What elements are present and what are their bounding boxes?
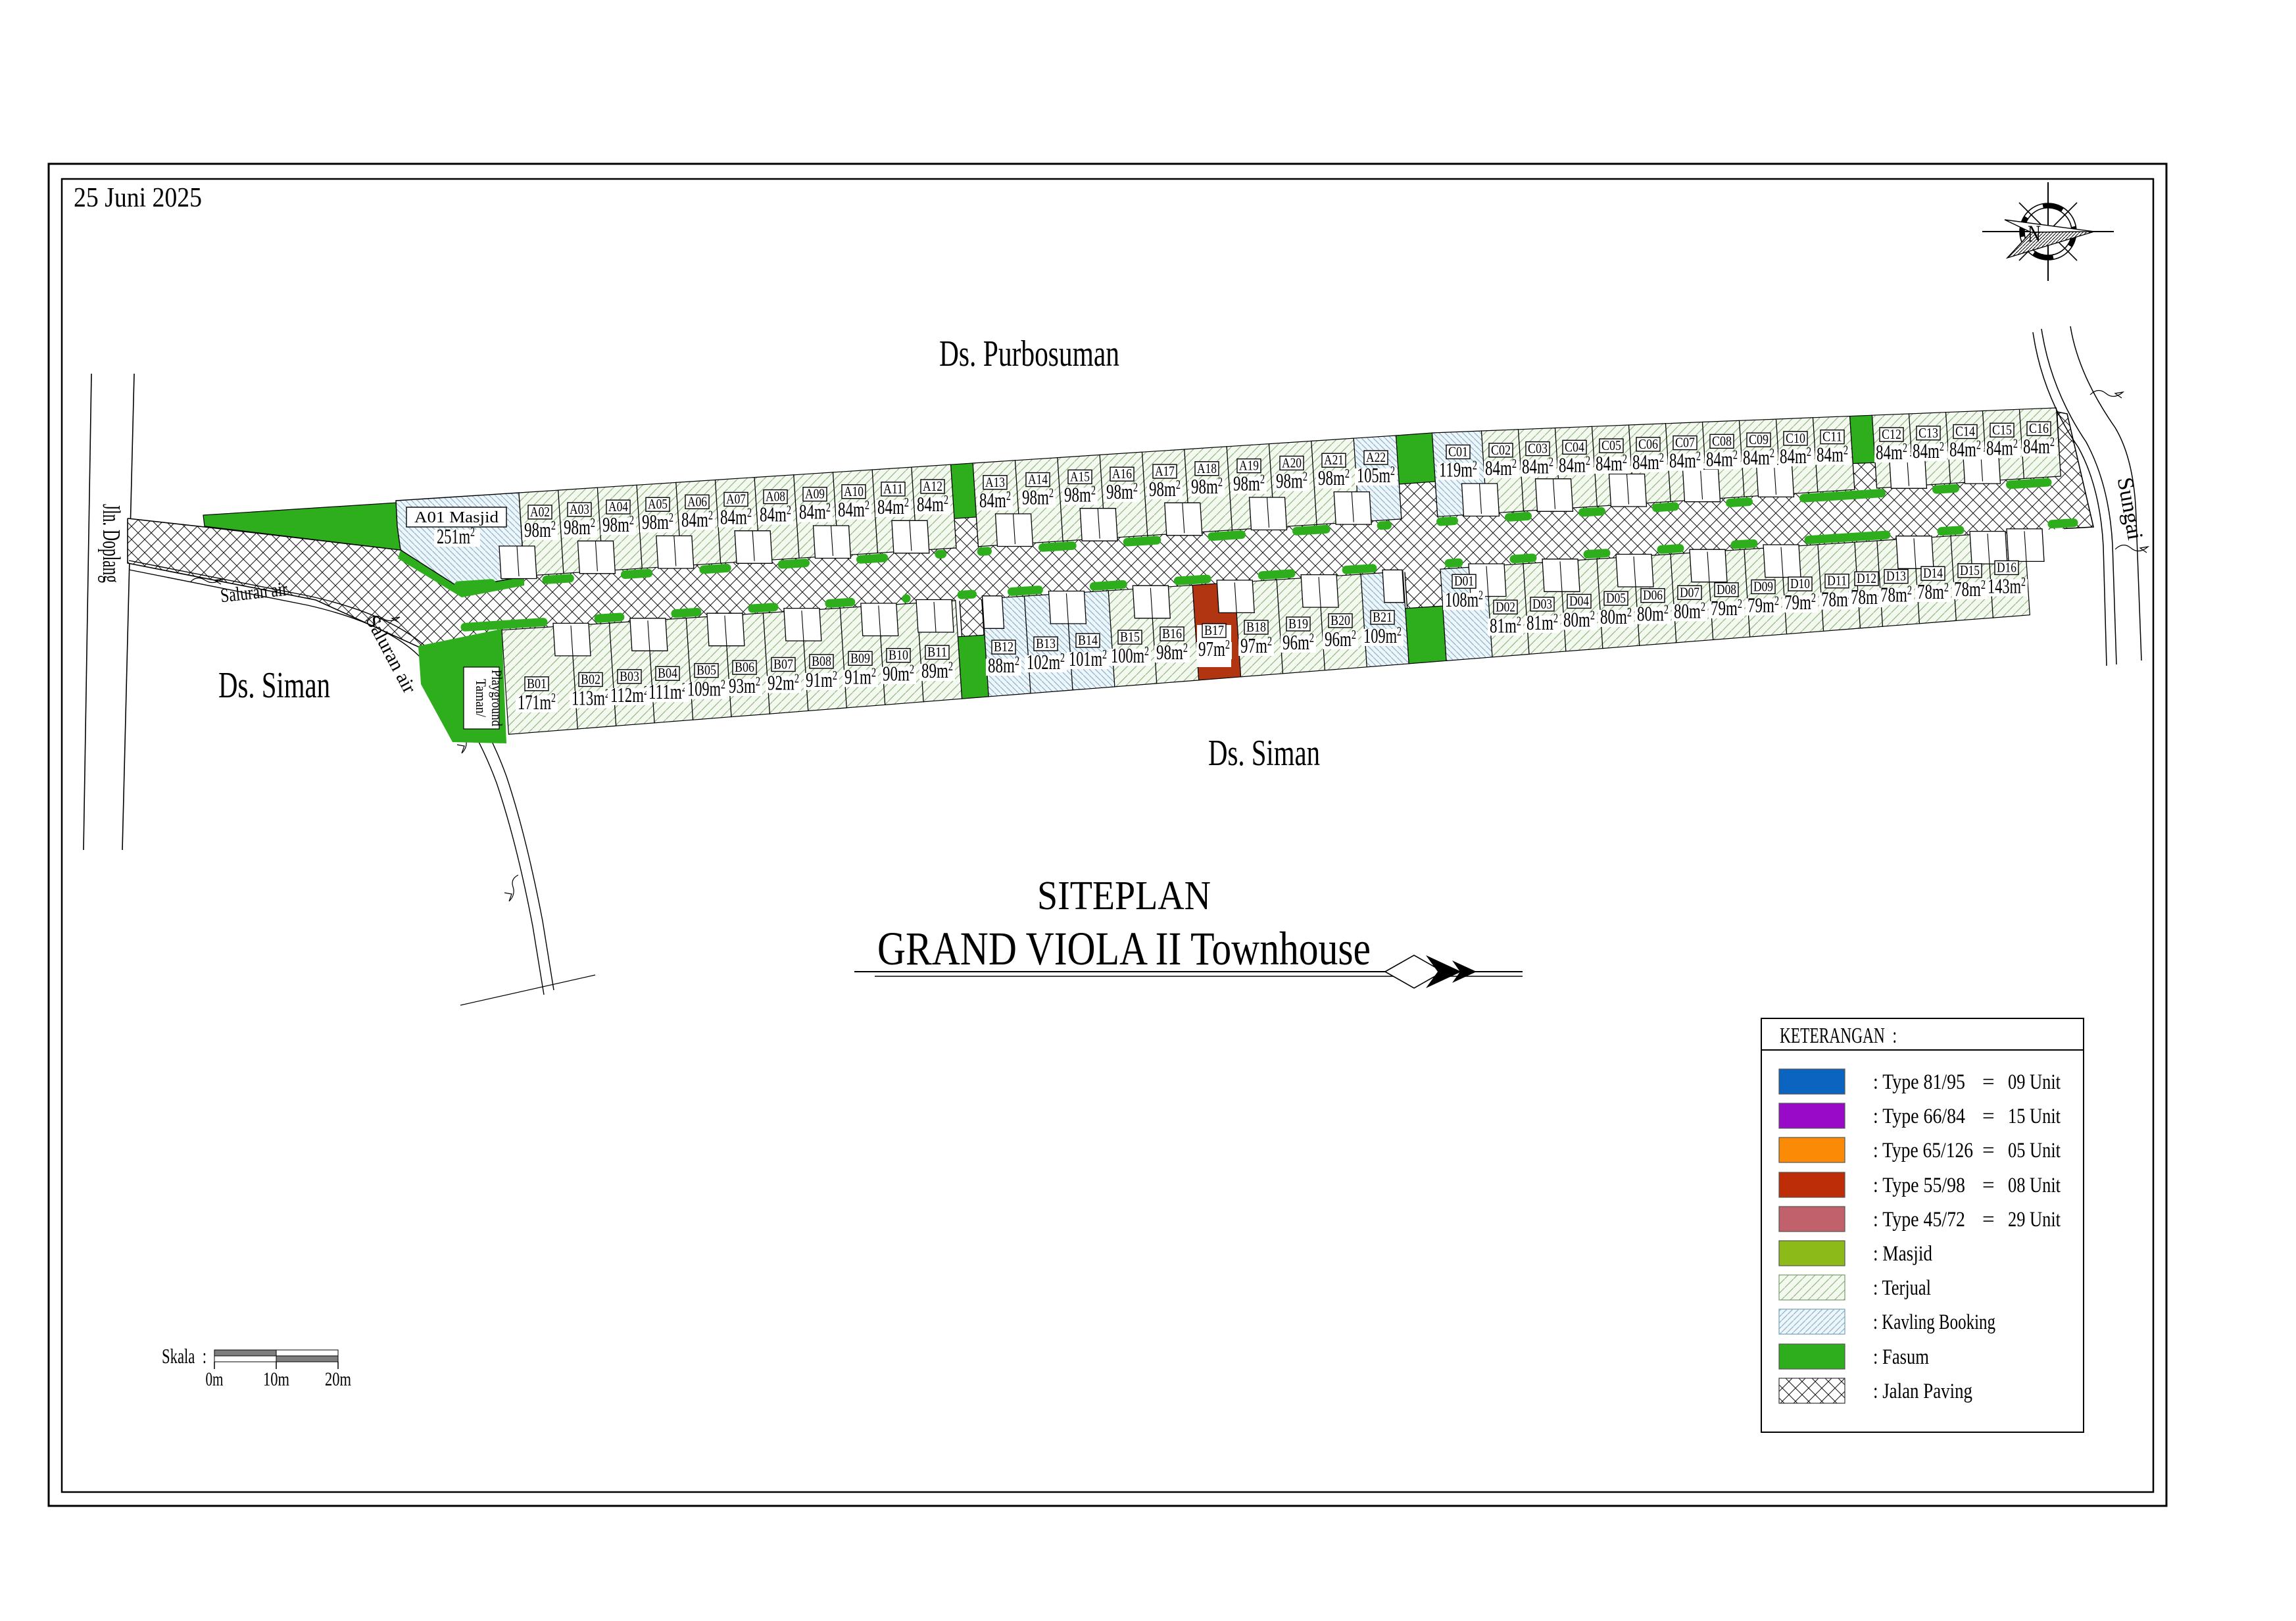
svg-text:D10: D10: [1790, 576, 1810, 591]
svg-text:111m2: 111m2: [648, 680, 687, 703]
svg-text:93m2: 93m2: [729, 674, 760, 697]
svg-text:84m2: 84m2: [1669, 449, 1701, 472]
svg-text:84m2: 84m2: [760, 503, 791, 526]
svg-text:SITEPLAN: SITEPLAN: [1037, 874, 1211, 918]
svg-text:29 Unit: 29 Unit: [2008, 1208, 2061, 1232]
svg-text:: Type 81/95: : Type 81/95: [1873, 1070, 1965, 1094]
svg-text:20m: 20m: [325, 1368, 351, 1390]
svg-text:98m2: 98m2: [602, 512, 634, 536]
svg-text:108m2: 108m2: [1445, 587, 1483, 611]
svg-text:91m2: 91m2: [806, 668, 837, 691]
svg-text:B20: B20: [1331, 612, 1350, 628]
svg-text:D13: D13: [1886, 568, 1906, 584]
svg-text:B14: B14: [1078, 632, 1098, 648]
svg-text:84m2: 84m2: [1485, 456, 1517, 480]
svg-text:97m2: 97m2: [1240, 634, 1272, 657]
svg-text:79m2: 79m2: [1747, 593, 1779, 616]
svg-text:N: N: [2028, 220, 2041, 247]
svg-text:Playground: Playground: [489, 670, 505, 726]
svg-text:113m2: 113m2: [572, 686, 610, 709]
svg-text:B12: B12: [994, 639, 1014, 655]
svg-text:81m2: 81m2: [1527, 611, 1558, 634]
svg-text:98m2: 98m2: [524, 518, 556, 541]
svg-text:B19: B19: [1288, 616, 1308, 632]
svg-text:=: =: [1982, 1105, 1995, 1128]
svg-text:98m2: 98m2: [1022, 486, 1054, 509]
svg-text:B11: B11: [927, 644, 947, 660]
svg-text:98m2: 98m2: [1233, 472, 1265, 495]
svg-text:B17: B17: [1204, 622, 1224, 638]
svg-text:D04: D04: [1569, 593, 1589, 609]
svg-text:25 Juni 2025: 25 Juni 2025: [74, 183, 202, 213]
svg-text:84m2: 84m2: [1986, 436, 2018, 459]
svg-text:78m2: 78m2: [1954, 577, 1986, 601]
svg-text:84m2: 84m2: [917, 492, 948, 516]
svg-text:15 Unit: 15 Unit: [2008, 1105, 2061, 1128]
svg-text:=: =: [1982, 1208, 1995, 1232]
svg-text:: Masjid: : Masjid: [1873, 1242, 1932, 1266]
svg-text:92m2: 92m2: [768, 670, 799, 694]
svg-text:B18: B18: [1246, 619, 1266, 635]
svg-text:B10: B10: [889, 647, 908, 663]
svg-text:79m2: 79m2: [1711, 596, 1742, 620]
svg-text:100m2: 100m2: [1111, 643, 1149, 667]
svg-text:B06: B06: [735, 659, 754, 675]
svg-text:84m2: 84m2: [838, 497, 869, 521]
svg-text:98m2: 98m2: [1064, 482, 1096, 506]
svg-text:84m2: 84m2: [2023, 434, 2055, 458]
svg-text:171m2: 171m2: [518, 690, 556, 714]
svg-text:09 Unit: 09 Unit: [2008, 1070, 2061, 1094]
svg-text:143m2: 143m2: [1988, 574, 2026, 597]
svg-text:B21: B21: [1373, 609, 1392, 625]
svg-text:D08: D08: [1717, 582, 1736, 597]
svg-text:Ds. Siman: Ds. Siman: [1208, 733, 1320, 774]
svg-text:Jln. Doplang: Jln. Doplang: [97, 504, 125, 583]
svg-text:D03: D03: [1532, 596, 1552, 612]
svg-text:96m2: 96m2: [1325, 627, 1356, 651]
svg-text:84m2: 84m2: [1780, 444, 1811, 468]
svg-text:D05: D05: [1606, 590, 1626, 606]
svg-text:98m2: 98m2: [1276, 468, 1307, 492]
svg-text:B03: B03: [620, 668, 639, 684]
svg-text:D12: D12: [1857, 570, 1876, 586]
svg-text:79m2: 79m2: [1784, 590, 1816, 614]
svg-text:: Type 45/72: : Type 45/72: [1873, 1208, 1965, 1232]
svg-text:B15: B15: [1120, 629, 1140, 645]
svg-text:B01: B01: [527, 676, 547, 691]
svg-text:96m2: 96m2: [1282, 630, 1314, 654]
svg-text:84m2: 84m2: [877, 495, 909, 518]
svg-text:78m2: 78m2: [1880, 583, 1912, 607]
svg-text:GRAND VIOLA II Townhouse: GRAND VIOLA II Townhouse: [877, 922, 1371, 975]
svg-text:78m2: 78m2: [1851, 585, 1882, 609]
svg-text:80m2: 80m2: [1600, 605, 1632, 628]
svg-text:D09: D09: [1753, 578, 1773, 594]
svg-text:84m2: 84m2: [1876, 440, 1907, 464]
svg-text:81m2: 81m2: [1490, 613, 1521, 637]
svg-text:: Type 65/126: : Type 65/126: [1873, 1139, 1973, 1162]
svg-text:98m2: 98m2: [1191, 474, 1223, 498]
svg-text:D16: D16: [1997, 559, 2016, 575]
svg-text:105m2: 105m2: [1357, 463, 1395, 487]
svg-text:80m2: 80m2: [1637, 602, 1669, 626]
svg-text:Skala :: Skala :: [162, 1344, 207, 1368]
svg-text:B08: B08: [812, 653, 831, 669]
svg-text:84m2: 84m2: [1522, 455, 1553, 478]
svg-text:Ds. Purbosuman: Ds. Purbosuman: [939, 334, 1119, 374]
svg-text:=: =: [1982, 1070, 1995, 1094]
svg-text:D14: D14: [1923, 565, 1943, 581]
svg-text:: Type 55/98: : Type 55/98: [1873, 1174, 1965, 1197]
svg-text:91m2: 91m2: [844, 664, 876, 688]
svg-text:101m2: 101m2: [1069, 647, 1107, 670]
svg-text:98m2: 98m2: [1156, 640, 1188, 664]
svg-text:251m2: 251m2: [437, 524, 475, 548]
svg-text:B13: B13: [1036, 636, 1056, 651]
svg-text:B02: B02: [581, 671, 600, 687]
svg-text:Taman/: Taman/: [473, 679, 489, 718]
svg-text:: Fasum: : Fasum: [1873, 1345, 1929, 1369]
svg-text:84m2: 84m2: [799, 500, 831, 524]
svg-text:B07: B07: [773, 656, 793, 672]
svg-text:84m2: 84m2: [1913, 439, 1944, 462]
svg-text:Ds. Siman: Ds. Siman: [218, 665, 330, 706]
svg-text:88m2: 88m2: [988, 653, 1019, 677]
svg-text:D07: D07: [1680, 584, 1699, 600]
svg-text:80m2: 80m2: [1674, 599, 1705, 622]
svg-text:05 Unit: 05 Unit: [2008, 1139, 2061, 1162]
svg-text:10m: 10m: [263, 1368, 289, 1390]
svg-text:109m2: 109m2: [687, 677, 725, 701]
svg-text:B04: B04: [658, 665, 677, 681]
svg-text:08 Unit: 08 Unit: [2008, 1174, 2061, 1197]
svg-text:98m2: 98m2: [642, 510, 673, 534]
svg-text:78m2: 78m2: [1917, 580, 1949, 603]
svg-text:B16: B16: [1162, 626, 1182, 641]
svg-text:D11: D11: [1827, 573, 1847, 589]
svg-text:84m2: 84m2: [720, 505, 752, 528]
svg-text:80m2: 80m2: [1563, 607, 1595, 631]
svg-text:84m2: 84m2: [1706, 447, 1738, 470]
svg-text:102m2: 102m2: [1027, 650, 1065, 674]
svg-text:78m2: 78m2: [1821, 587, 1853, 611]
svg-text:84m2: 84m2: [1559, 453, 1590, 476]
svg-text:KETERANGAN :: KETERANGAN :: [1780, 1024, 1897, 1048]
svg-text:84m2: 84m2: [1743, 445, 1774, 469]
svg-text:84m2: 84m2: [1596, 451, 1627, 475]
svg-text:B05: B05: [696, 662, 716, 678]
svg-text:119m2: 119m2: [1439, 457, 1477, 481]
svg-text:98m2: 98m2: [1318, 466, 1350, 489]
svg-text:84m2: 84m2: [681, 507, 713, 531]
svg-text:=: =: [1982, 1174, 1995, 1197]
svg-text:0m: 0m: [206, 1368, 224, 1390]
svg-text:=: =: [1982, 1139, 1995, 1162]
svg-text:D02: D02: [1496, 599, 1515, 614]
svg-text:98m2: 98m2: [564, 515, 595, 539]
svg-text:112m2: 112m2: [610, 683, 648, 707]
svg-text:: Jalan Paving: : Jalan Paving: [1873, 1380, 1972, 1403]
svg-text:90m2: 90m2: [883, 662, 914, 686]
svg-text:84m2: 84m2: [979, 488, 1011, 512]
svg-text:D06: D06: [1643, 587, 1663, 603]
svg-text:97m2: 97m2: [1198, 637, 1230, 661]
svg-text:89m2: 89m2: [921, 659, 953, 682]
svg-text:84m2: 84m2: [1949, 437, 1981, 461]
svg-text:D01: D01: [1454, 573, 1474, 589]
svg-text:84m2: 84m2: [1817, 443, 1848, 466]
svg-text:98m2: 98m2: [1106, 480, 1138, 503]
svg-text:: Type 66/84: : Type 66/84: [1873, 1105, 1965, 1128]
svg-text:84m2: 84m2: [1632, 450, 1664, 474]
svg-text:98m2: 98m2: [1149, 477, 1181, 501]
svg-text:B09: B09: [850, 650, 870, 666]
svg-text:109m2: 109m2: [1363, 624, 1402, 647]
svg-text:: Kavling Booking: : Kavling Booking: [1873, 1310, 1995, 1334]
svg-text:D15: D15: [1960, 562, 1980, 578]
svg-text:: Terjual: : Terjual: [1873, 1276, 1931, 1300]
